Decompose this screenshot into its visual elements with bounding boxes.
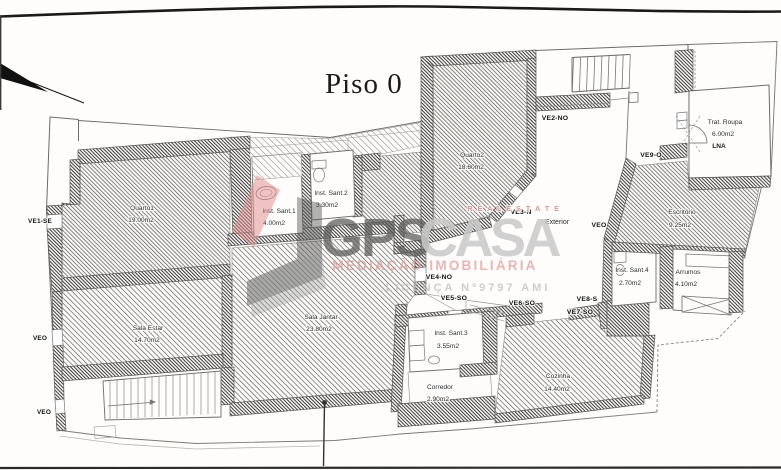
svg-text:14.70m2: 14.70m2	[134, 337, 160, 344]
svg-text:14.40m2: 14.40m2	[544, 386, 570, 393]
svg-text:4.00m2: 4.00m2	[263, 220, 285, 227]
svg-text:3.55m2: 3.55m2	[437, 343, 459, 350]
svg-text:VE6-SO: VE6-SO	[509, 300, 535, 307]
svg-text:VEO: VEO	[33, 335, 47, 342]
svg-text:19.00m2: 19.00m2	[128, 217, 154, 224]
svg-text:6.00m2: 6.00m2	[712, 131, 734, 138]
svg-text:Inst. Sant.4: Inst. Sant.4	[615, 267, 649, 274]
svg-text:VE4-NO: VE4-NO	[426, 274, 453, 281]
svg-text:VE7-SO: VE7-SO	[567, 309, 593, 316]
svg-text:2.90m2: 2.90m2	[427, 396, 449, 403]
svg-text:9.25m2: 9.25m2	[669, 222, 691, 229]
svg-text:Arrumos: Arrumos	[676, 269, 702, 276]
svg-text:Sala Jantar: Sala Jantar	[304, 314, 338, 321]
svg-text:4.10m2: 4.10m2	[675, 281, 697, 288]
svg-text:Inst. Sant.3: Inst. Sant.3	[434, 330, 468, 337]
svg-text:VE2-NO: VE2-NO	[542, 115, 569, 122]
svg-text:Trat. Roupa: Trat. Roupa	[708, 119, 743, 126]
svg-text:18.60m2: 18.60m2	[458, 164, 484, 171]
svg-text:Inst. Sant.2: Inst. Sant.2	[314, 190, 348, 197]
svg-text:LICENÇA Nº9797 AMI: LICENÇA Nº9797 AMI	[386, 282, 551, 294]
svg-text:Quarto2: Quarto2	[460, 152, 484, 159]
svg-text:2.70m2: 2.70m2	[619, 280, 641, 287]
svg-text:Quarto1: Quarto1	[130, 205, 154, 212]
svg-text:VEO: VEO	[592, 222, 607, 229]
svg-text:VE5-SO: VE5-SO	[441, 295, 467, 302]
svg-text:MEDIAÇÃO IMOBILIÁRIA: MEDIAÇÃO IMOBILIÁRIA	[332, 258, 537, 273]
svg-text:VEO: VEO	[37, 409, 51, 416]
svg-text:Escritório: Escritório	[668, 209, 696, 216]
svg-text:VE8-S: VE8-S	[577, 296, 598, 303]
svg-text:Corredor: Corredor	[427, 384, 454, 391]
svg-text:Piso 0: Piso 0	[325, 68, 403, 100]
svg-text:LNA: LNA	[712, 143, 726, 150]
svg-text:Sala Estar: Sala Estar	[133, 325, 164, 332]
svg-text:Cozinha: Cozinha	[546, 373, 571, 380]
svg-text:23.80m2: 23.80m2	[306, 326, 332, 333]
svg-text:VE9-O: VE9-O	[640, 152, 661, 159]
svg-text:VE1-SE: VE1-SE	[28, 218, 52, 225]
